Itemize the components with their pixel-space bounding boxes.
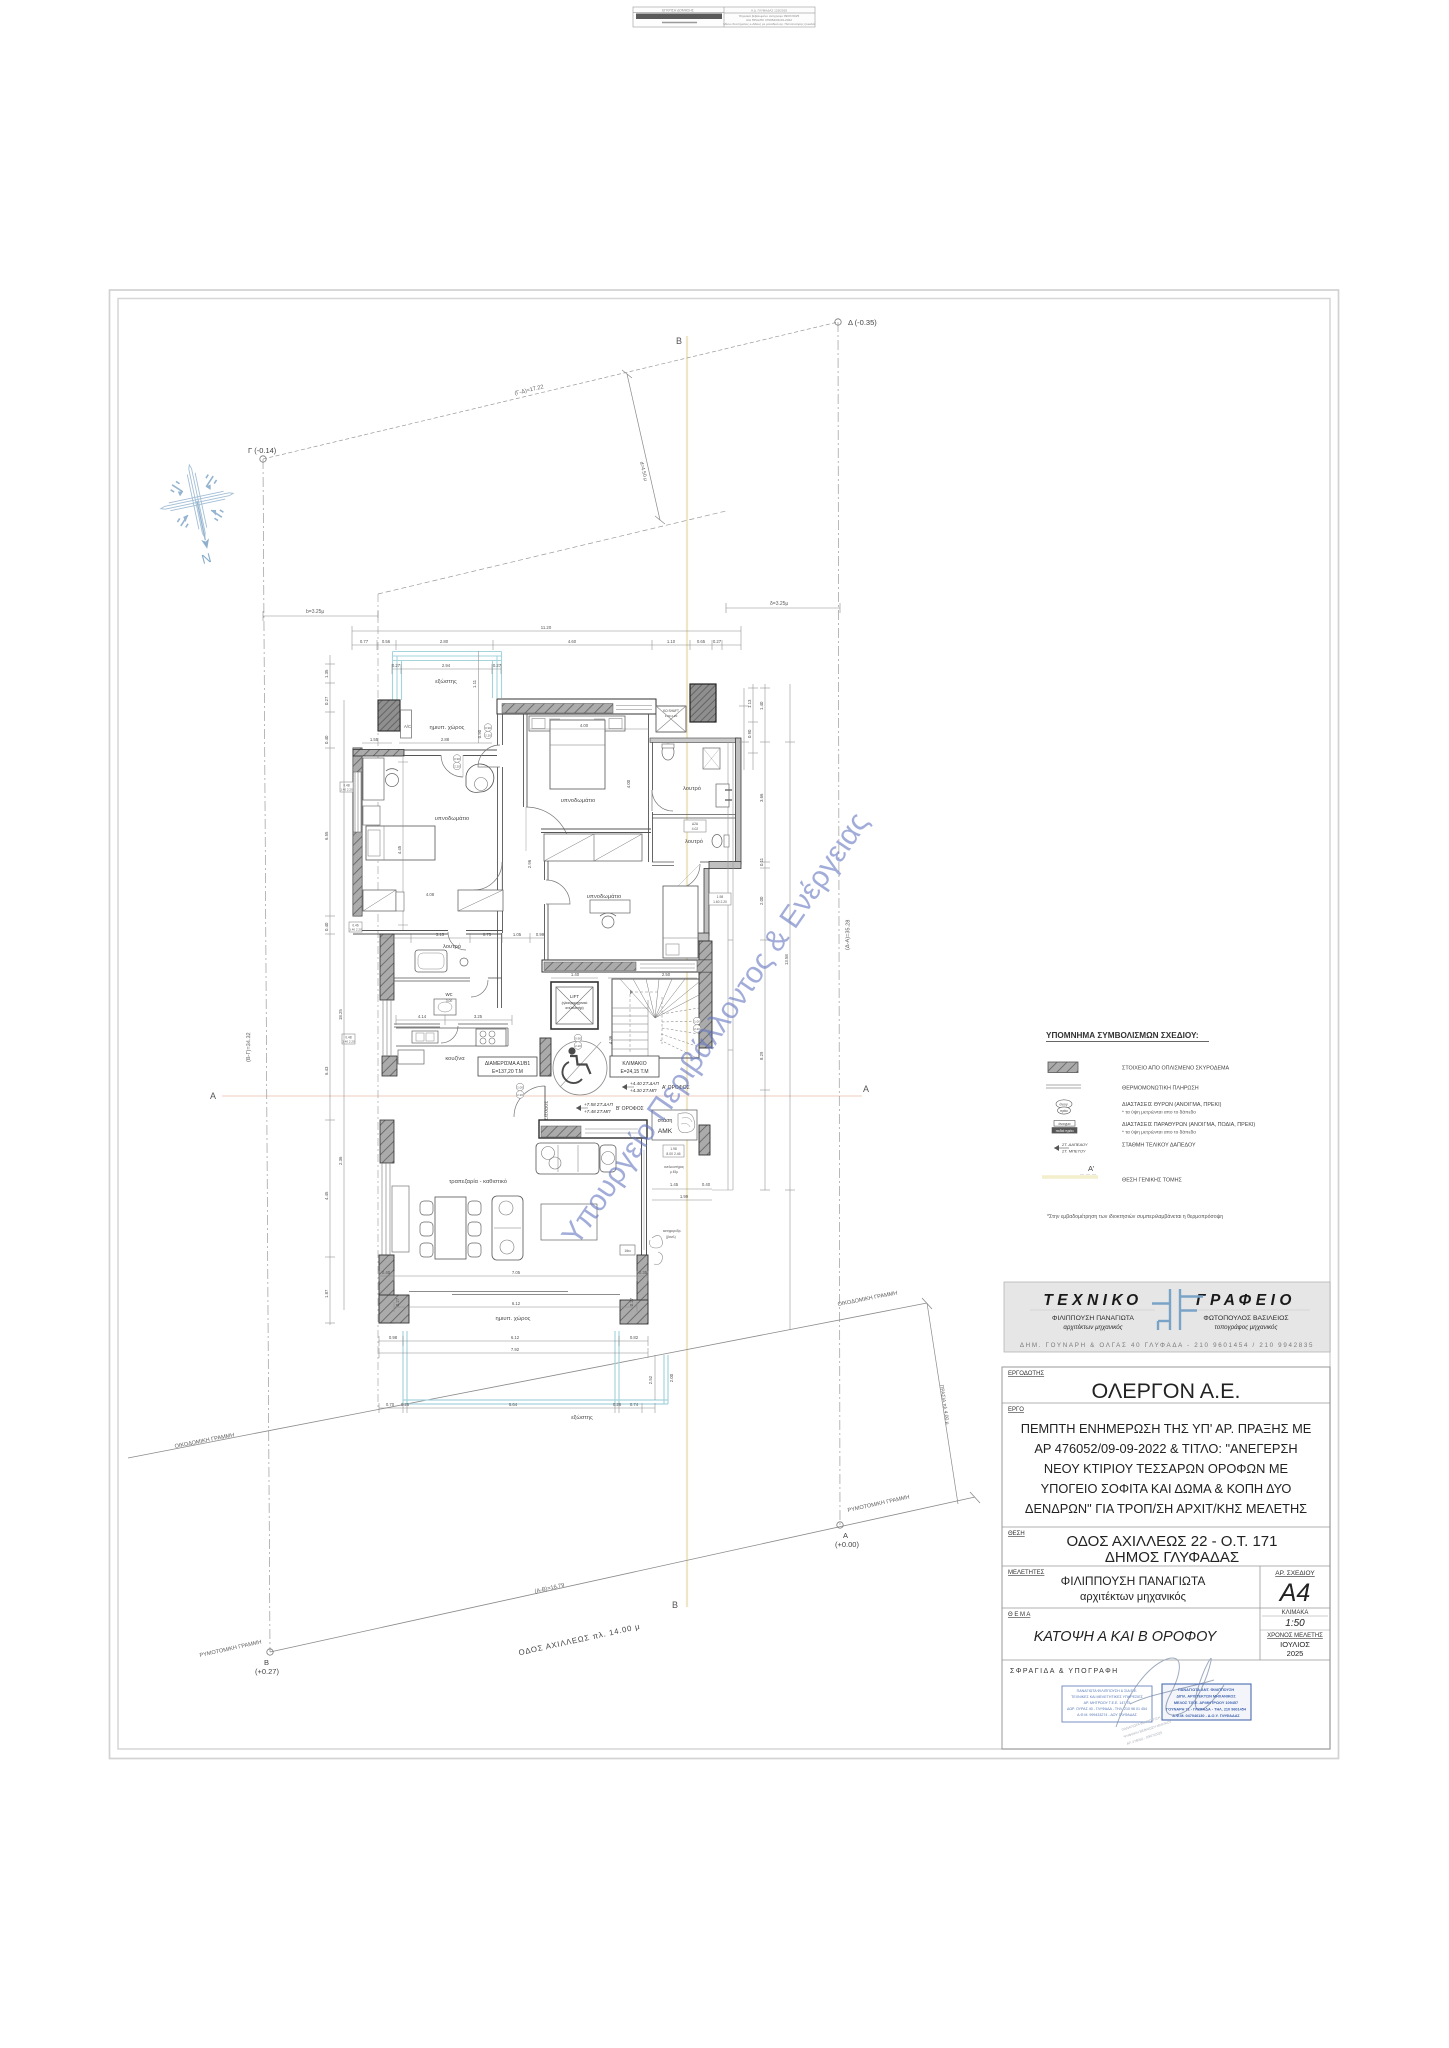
- svg-text:ΚΛΙΜΑΚΑ: ΚΛΙΜΑΚΑ: [1282, 1610, 1309, 1616]
- svg-text:0.27: 0.27: [629, 1297, 634, 1306]
- svg-text:ΣΤΟΙΧΕΙΟ ΑΠΟ ΟΠΛΙΣΜΕΝΟ ΣΚΥΡΟΔΕ: ΣΤΟΙΧΕΙΟ ΑΠΟ ΟΠΛΙΣΜΕΝΟ ΣΚΥΡΟΔΕΜΑ: [1122, 1066, 1230, 1072]
- svg-text:άνοιγ.: άνοιγ.: [1060, 1103, 1069, 1107]
- svg-text:LIFT: LIFT: [570, 994, 579, 999]
- svg-text:3.00: 3.00: [446, 999, 453, 1003]
- svg-text:2.36: 2.36: [338, 1156, 343, 1165]
- svg-text:11.20: 11.20: [541, 625, 552, 630]
- svg-text:2.20: 2.20: [575, 1044, 581, 1048]
- svg-text:0.98: 0.98: [389, 1335, 398, 1340]
- svg-text:ΔΙΑΣΤΑΣΕΙΣ ΘΥΡΩΝ (ΑΝΟΙΓΜΑ, ΠΡΕ: ΔΙΑΣΤΑΣΕΙΣ ΘΥΡΩΝ (ΑΝΟΙΓΜΑ, ΠΡΕΚΙ): [1122, 1102, 1222, 1108]
- svg-text:ΣΤ. ΔΑΠΕΔΟΥ: ΣΤ. ΔΑΠΕΔΟΥ: [1061, 1142, 1088, 1147]
- svg-text:κουζίνα: κουζίνα: [445, 1056, 465, 1062]
- svg-text:*Στην εμβαδομέτρηση των ιδιοκτ: *Στην εμβαδομέτρηση των ιδιοκτησιών συμπ…: [1047, 1213, 1223, 1220]
- svg-text:0.82: 0.82: [630, 1335, 639, 1340]
- svg-text:δ=3.25μ: δ=3.25μ: [770, 601, 788, 607]
- svg-text:ΔΙΑΜΕΡΙΣΜΑ Α1/Β1: ΔΙΑΜΕΡΙΣΜΑ Α1/Β1: [485, 1061, 531, 1067]
- svg-text:(Β-Γ)=34.32: (Β-Γ)=34.32: [246, 1032, 252, 1062]
- svg-text:ΜΕΛΟΣ Τ.Ε.Ε. ΑΡ.ΜΗΤΡΩΟΥ 109457: ΜΕΛΟΣ Τ.Ε.Ε. ΑΡ.ΜΗΤΡΩΟΥ 109457: [1174, 1701, 1238, 1705]
- svg-text:ΠΕΜΠΤΗ ΕΝΗΜΕΡΩΣΗ ΤΗΣ ΥΠ' ΑΡ. Π: ΠΕΜΠΤΗ ΕΝΗΜΕΡΩΣΗ ΤΗΣ ΥΠ' ΑΡ. ΠΡΑΞΗΣ ΜΕ: [1021, 1421, 1312, 1436]
- svg-text:0.90: 0.90: [575, 1037, 581, 1041]
- svg-text:υπνοδωμάτιο: υπνοδωμάτιο: [435, 815, 470, 822]
- svg-text:ΔΙΑΣΤΑΣΕΙΣ ΠΑΡΑΘΥΡΩΝ (ΑΝΟΙΓΜΑ,: ΔΙΑΣΤΑΣΕΙΣ ΠΑΡΑΘΥΡΩΝ (ΑΝΟΙΓΜΑ, ΠΟΔΙΑ, ΠΡ…: [1122, 1122, 1255, 1128]
- svg-text:0.27: 0.27: [395, 1297, 400, 1306]
- svg-text:2.52: 2.52: [648, 1375, 653, 1384]
- svg-text:2.94: 2.94: [442, 663, 451, 668]
- svg-text:4.60: 4.60: [568, 639, 577, 644]
- svg-text:0.40: 0.40: [324, 735, 329, 744]
- svg-text:μ 45μ: μ 45μ: [670, 1170, 678, 1174]
- svg-text:ημιυπ. χώρος: ημιυπ. χώρος: [430, 725, 465, 731]
- svg-text:1:50: 1:50: [1285, 1618, 1305, 1629]
- svg-text:+7.48 ΣΤ.ΜΠ: +7.48 ΣΤ.ΜΠ: [584, 1109, 611, 1114]
- svg-text:4.14: 4.14: [418, 1014, 427, 1019]
- svg-text:πρέκι: πρέκι: [1060, 1109, 1068, 1113]
- svg-text:ΤΕΧΝΙΚΕΣ ΚΑΙ ΜΕΛΕΤΗΤΙΚΕΣ ΥΠΗΡΕ: ΤΕΧΝΙΚΕΣ ΚΑΙ ΜΕΛΕΤΗΤΙΚΕΣ ΥΠΗΡΕΣΙΕΣ: [1071, 1695, 1144, 1699]
- svg-text:4.02: 4.02: [692, 827, 699, 831]
- svg-text:4.00: 4.00: [626, 779, 631, 788]
- svg-text:+4.40 ΣΤ.ΔΑΠ: +4.40 ΣΤ.ΔΑΠ: [630, 1081, 659, 1086]
- svg-text:ποδιά πρέκι: ποδιά πρέκι: [1056, 1129, 1074, 1133]
- svg-text:2.00: 2.00: [669, 1373, 674, 1382]
- svg-text:ανελκυστήρ): ανελκυστήρ): [565, 1006, 583, 1010]
- svg-text:ΕΡΓΟ: ΕΡΓΟ: [1008, 1407, 1024, 1413]
- svg-text:2.80: 2.80: [440, 639, 449, 644]
- svg-text:b=3.25μ: b=3.25μ: [306, 609, 324, 615]
- svg-text:υπνοδωμάτιο: υπνοδωμάτιο: [561, 797, 596, 804]
- svg-text:ΝΕΟΥ ΚΤΙΡΙΟΥ ΤΕΣΣΑΡΩΝ ΟΡΟΦΩΝ Μ: ΝΕΟΥ ΚΤΙΡΙΟΥ ΤΕΣΣΑΡΩΝ ΟΡΟΦΩΝ ΜΕ: [1044, 1461, 1288, 1476]
- svg-text:7.92: 7.92: [511, 1347, 520, 1352]
- svg-text:Α4: Α4: [1278, 1579, 1311, 1607]
- svg-text:3.25: 3.25: [474, 1014, 483, 1019]
- svg-text:0.40: 0.40: [324, 922, 329, 931]
- svg-text:1.40 2.20: 1.40 2.20: [349, 928, 362, 932]
- svg-text:1.55: 1.55: [370, 737, 379, 742]
- svg-text:ΘΕΣΗ: ΘΕΣΗ: [1008, 1531, 1025, 1537]
- svg-text:1.20 2.20: 1.20 2.20: [665, 714, 678, 718]
- svg-text:wc: wc: [444, 992, 452, 998]
- svg-text:ΙΟΥΛΙΟΣ: ΙΟΥΛΙΟΣ: [1280, 1640, 1310, 1649]
- svg-text:1.60 2.20: 1.60 2.20: [713, 900, 727, 904]
- svg-text:1.98: 1.98: [670, 1147, 677, 1151]
- svg-text:(ηλεκτρομηχανικό: (ηλεκτρομηχανικό: [562, 1001, 588, 1005]
- svg-text:0.70: 0.70: [386, 1402, 395, 1407]
- svg-text:(+0.00): (+0.00): [835, 1540, 859, 1549]
- svg-text:(Δ-Α)=35.28: (Δ-Α)=35.28: [845, 920, 852, 950]
- svg-text:ΧΡΟΝΟΣ ΜΕΛΕΤΗΣ: ΧΡΟΝΟΣ ΜΕΛΕΤΗΣ: [1267, 1633, 1323, 1639]
- svg-text:Θ Ε Μ Α: Θ Ε Μ Α: [1008, 1612, 1030, 1618]
- svg-text:αρχιτέκτων μηχανικός: αρχιτέκτων μηχανικός: [1080, 1591, 1186, 1603]
- svg-text:1.10: 1.10: [667, 639, 676, 644]
- svg-text:0.90: 0.90: [485, 726, 491, 730]
- svg-text:ΚΛΙΜΑΚΙΟ: ΚΛΙΜΑΚΙΟ: [622, 1061, 646, 1067]
- svg-text:4.00: 4.00: [580, 723, 589, 728]
- svg-text:A: A: [843, 1531, 848, 1540]
- svg-text:ΓΡΑΦΕΙΟ: ΓΡΑΦΕΙΟ: [1196, 1292, 1296, 1309]
- svg-text:6.43: 6.43: [324, 1066, 329, 1075]
- svg-text:τραπεζαρία - καθιστικό: τραπεζαρία - καθιστικό: [449, 1178, 507, 1185]
- svg-text:κατηφορόδρ.: κατηφορόδρ.: [663, 1229, 681, 1233]
- svg-text:Δ (-0.35): Δ (-0.35): [848, 318, 877, 327]
- svg-text:ΣΦΡΑΓΙΔΑ & ΥΠΟΓΡΑΦΗ: ΣΦΡΑΓΙΔΑ & ΥΠΟΓΡΑΦΗ: [1010, 1668, 1119, 1675]
- svg-text:0.27: 0.27: [324, 696, 329, 705]
- svg-text:1.98: 1.98: [717, 895, 724, 899]
- svg-text:3.66: 3.66: [759, 793, 764, 802]
- svg-text:Γ (-0.14): Γ (-0.14): [248, 446, 277, 455]
- svg-text:0.65: 0.65: [697, 639, 706, 644]
- svg-text:1.99: 1.99: [680, 1194, 689, 1199]
- svg-text:ΘΕΣΗ ΓΕΝΙΚΗΣ ΤΟΜΗΣ: ΘΕΣΗ ΓΕΝΙΚΗΣ ΤΟΜΗΣ: [1122, 1178, 1182, 1184]
- svg-text:4.45: 4.45: [324, 1191, 329, 1200]
- svg-text:τοπογράφος μηχανικός: τοπογράφος μηχανικός: [1215, 1324, 1278, 1331]
- svg-text:0.99: 0.99: [536, 932, 545, 937]
- svg-text:ΘΕΡΜΟΜΟΝΩΤΙΚΗ ΠΛΗΡΩΣΗ: ΘΕΡΜΟΜΟΝΩΤΙΚΗ ΠΛΗΡΩΣΗ: [1122, 1086, 1199, 1092]
- svg-text:ΕΓΚΡΙΣΗ ΔΟΜΗΣΗΣ: ΕΓΚΡΙΣΗ ΔΟΜΗΣΗΣ: [662, 9, 694, 13]
- svg-text:1.87: 1.87: [324, 1289, 329, 1298]
- svg-text:ΦΙΛΙΠΠΟΥΣΗ ΠΑΝΑΓΙΩΤΑ: ΦΙΛΙΠΠΟΥΣΗ ΠΑΝΑΓΙΩΤΑ: [1061, 1574, 1206, 1588]
- svg-text:5.64: 5.64: [509, 1402, 518, 1407]
- svg-text:ΔΩΡ. ΟΥΡΑΣ 40 - ΓΛΥΦΑΔΑ - ΤΗΛ.: ΔΩΡ. ΟΥΡΑΣ 40 - ΓΛΥΦΑΔΑ - ΤΗΛ. 210 96 01…: [1067, 1707, 1147, 1711]
- svg-text:2.88: 2.88: [441, 737, 450, 742]
- svg-text:0.27: 0.27: [713, 639, 722, 644]
- svg-text:1.13: 1.13: [747, 699, 752, 708]
- svg-text:ΑΡ. ΣΧΕΔΙΟΥ: ΑΡ. ΣΧΕΔΙΟΥ: [1275, 1570, 1315, 1577]
- svg-text:Ε=24,15 Τ.Μ: Ε=24,15 Τ.Μ: [620, 1069, 648, 1075]
- svg-text:ΕΡΓΟΔΟΤΗΣ: ΕΡΓΟΔΟΤΗΣ: [1008, 1371, 1044, 1377]
- svg-text:1.45: 1.45: [670, 1182, 679, 1187]
- svg-text:A: A: [863, 1084, 869, 1094]
- svg-text:4.08: 4.08: [426, 892, 435, 897]
- svg-text:ανελκυστήρας: ανελκυστήρας: [664, 1165, 684, 1169]
- svg-text:λουτρό: λουτρό: [683, 785, 701, 792]
- svg-text:αρχιτέκτων μηχανικός: αρχιτέκτων μηχανικός: [1063, 1324, 1122, 1331]
- svg-text:0.56: 0.56: [382, 639, 391, 644]
- svg-text:ημιυπ. χώρος: ημιυπ. χώρος: [496, 1316, 531, 1322]
- svg-text:ΠΑΝΑΓΙΩΤΑ ΦΙΛΙΠΠΟΥΣΗ & ΣΙΑ Ε.Ε: ΠΑΝΑΓΙΩΤΑ ΦΙΛΙΠΠΟΥΣΗ & ΣΙΑ Ε.Ε.: [1077, 1689, 1138, 1693]
- svg-text:ΔΙΠΛ. ΑΡΧΙΤΕΚΤΩΝ ΜΗΧΑΝΙΚΟΣ: ΔΙΠΛ. ΑΡΧΙΤΕΚΤΩΝ ΜΗΧΑΝΙΚΟΣ: [1176, 1695, 1236, 1699]
- svg-text:ΔΕΝΔΡΩΝ" ΓΙΑ ΤΡΟΠ/ΣΗ ΑΡΧΙΤ/ΚΗΣ: ΔΕΝΔΡΩΝ" ΓΙΑ ΤΡΟΠ/ΣΗ ΑΡΧΙΤ/ΚΗΣ ΜΕΛΕΤΗΣ: [1025, 1501, 1307, 1516]
- svg-text:Α.Φ.Μ. 047046130 - Δ.Ο.Υ. ΓΛΥΦ: Α.Φ.Μ. 047046130 - Δ.Ο.Υ. ΓΛΥΦΑΔΑΣ: [1172, 1714, 1240, 1718]
- svg-text:B: B: [676, 336, 682, 346]
- svg-text:0.75: 0.75: [483, 932, 492, 937]
- svg-text:ΦΩΤΟΠΟΥΛΟΣ ΒΑΣΙΛΕΙΟΣ: ΦΩΤΟΠΟΥΛΟΣ ΒΑΣΙΛΕΙΟΣ: [1203, 1315, 1288, 1322]
- svg-text:0.40: 0.40: [382, 1270, 391, 1275]
- svg-text:ΔΗΜΟΣ ΓΛΥΦΑΔΑΣ: ΔΗΜΟΣ ΓΛΥΦΑΔΑΣ: [1105, 1549, 1239, 1566]
- svg-text:B: B: [264, 1658, 269, 1667]
- svg-text:2025: 2025: [1287, 1649, 1304, 1658]
- svg-text:0.40: 0.40: [702, 1182, 711, 1187]
- svg-text:8.29: 8.29: [759, 1051, 764, 1060]
- svg-text:λουτρό: λουτρό: [685, 838, 703, 845]
- svg-text:ΜΕΛΕΤΗΤΕΣ: ΜΕΛΕΤΗΤΕΣ: [1008, 1570, 1045, 1576]
- svg-text:ΣΤ. ΜΠΕΤΟΥ: ΣΤ. ΜΠΕΤΟΥ: [1061, 1149, 1086, 1154]
- svg-text:0.27: 0.27: [493, 663, 502, 668]
- svg-text:0.11: 0.11: [759, 857, 764, 866]
- svg-text:ΟΛΕΡΓΟΝ Α.Ε.: ΟΛΕΡΓΟΝ Α.Ε.: [1092, 1379, 1241, 1403]
- svg-text:ΕΙΣΟΔΟΣ: ΕΙΣΟΔΟΣ: [544, 1101, 549, 1120]
- svg-text:7.05: 7.05: [512, 1270, 521, 1275]
- svg-text:(+0.27): (+0.27): [255, 1667, 279, 1676]
- svg-text:2.00: 2.00: [759, 896, 764, 905]
- svg-text:ΤΕΧΝΙΚΟ: ΤΕΧΝΙΚΟ: [1043, 1292, 1142, 1309]
- svg-text:λουτρό: λουτρό: [443, 943, 461, 950]
- svg-text:άνοιγμα: άνοιγμα: [1059, 1122, 1071, 1126]
- svg-text:2.20: 2.20: [454, 765, 460, 769]
- svg-text:Ε=137,20 Τ.Μ: Ε=137,20 Τ.Μ: [492, 1069, 523, 1075]
- svg-text:+7.58 ΣΤ.ΔΑΠ: +7.58 ΣΤ.ΔΑΠ: [584, 1102, 613, 1107]
- svg-text:Α.Φ.Μ. 999433274 - ΔΟΥ ΓΛΥΦΑΔΑ: Α.Φ.Μ. 999433274 - ΔΟΥ ΓΛΥΦΑΔΑΣ: [1077, 1713, 1138, 1717]
- svg-text:εξώστης: εξώστης: [435, 679, 457, 685]
- svg-text:* τα ύψη μετρώνται απο το δάπε: * τα ύψη μετρώνται απο το δάπεδο: [1122, 1129, 1196, 1136]
- svg-text:0.74: 0.74: [630, 1402, 639, 1407]
- svg-text:6.12: 6.12: [512, 1301, 521, 1306]
- svg-text:1.00: 1.00: [517, 1086, 523, 1090]
- svg-text:A: A: [210, 1091, 216, 1101]
- svg-text:ΚΑΤΟΨΗ Α ΚΑΙ Β ΟΡΟΦΟΥ: ΚΑΤΟΨΗ Α ΚΑΙ Β ΟΡΟΦΟΥ: [1034, 1629, 1218, 1645]
- svg-text:1.40: 1.40: [571, 972, 580, 977]
- svg-text:4.36: 4.36: [608, 1035, 613, 1044]
- svg-text:18.25: 18.25: [338, 1009, 343, 1020]
- svg-text:ΣΤΑΘΜΗ ΤΕΛΙΚΟΥ ΔΑΠΕΔΟΥ: ΣΤΑΘΜΗ ΤΕΛΙΚΟΥ ΔΑΠΕΔΟΥ: [1122, 1143, 1196, 1149]
- svg-text:Μέσω Συστήματος e-Αδειες με μο: Μέσω Συστήματος e-Αδειες με μοναδικό αρ.…: [723, 22, 815, 26]
- svg-text:Α': Α': [1088, 1164, 1095, 1173]
- svg-text:1.35: 1.35: [324, 669, 329, 678]
- svg-text:2.96: 2.96: [527, 859, 532, 868]
- svg-text:0.26: 0.26: [613, 1402, 622, 1407]
- svg-text:0.90: 0.90: [454, 757, 460, 761]
- svg-text:ΥΠΟΓΕΙΟ ΣΟΦΙΤΑ ΚΑΙ ΔΩΜΑ & ΚΟΠΗ: ΥΠΟΓΕΙΟ ΣΟΦΙΤΑ ΚΑΙ ΔΩΜΑ & ΚΟΠΗ ΔΥΟ: [1041, 1481, 1292, 1496]
- svg-text:A/C: A/C: [404, 724, 411, 729]
- svg-text:ΚΩ SHAFT: ΚΩ SHAFT: [663, 709, 679, 713]
- svg-text:B: B: [672, 1600, 678, 1610]
- svg-text:3.15: 3.15: [436, 932, 445, 937]
- svg-text:ΠΑΝΑΓΙΩΤΑ ΑΝΤ. ΦΙΛΙΠΠΟΥΣΗ: ΠΑΝΑΓΙΩΤΑ ΑΝΤ. ΦΙΛΙΠΠΟΥΣΗ: [1178, 1688, 1234, 1692]
- svg-text:Δ2Α: Δ2Α: [692, 822, 699, 826]
- svg-text:ΦΙΛΙΠΠΟΥΣΗ ΠΑΝΑΓΙΩΤΑ: ΦΙΛΙΠΠΟΥΣΗ ΠΑΝΑΓΙΩΤΑ: [1052, 1315, 1134, 1322]
- svg-text:ΥΠΟΜΝΗΜΑ ΣΥΜΒΟΛΙΣΜΩΝ ΣΧΕΔΙΟΥ:: ΥΠΟΜΝΗΜΑ ΣΥΜΒΟΛΙΣΜΩΝ ΣΧΕΔΙΟΥ:: [1046, 1031, 1199, 1040]
- svg-text:2.50: 2.50: [662, 972, 671, 977]
- svg-text:8.00 2.46: 8.00 2.46: [666, 1152, 680, 1156]
- svg-text:ΑΡ. ΜΗΤΡΩΟΥ Τ.Ε.Ε. 147 75: ΑΡ. ΜΗΤΡΩΟΥ Τ.Ε.Ε. 147 75: [1084, 1701, 1131, 1705]
- svg-text:2.20: 2.20: [485, 734, 491, 738]
- svg-text:(βανιλ): (βανιλ): [666, 1235, 676, 1239]
- svg-text:0.90: 0.90: [747, 729, 752, 738]
- svg-text:0.77: 0.77: [360, 639, 369, 644]
- svg-text:υπνοδωμάτιο: υπνοδωμάτιο: [587, 893, 622, 900]
- svg-text:εξώστης: εξώστης: [571, 1415, 593, 1421]
- svg-text:4.45: 4.45: [397, 845, 402, 854]
- svg-text:1.40 2.20: 1.40 2.20: [340, 788, 353, 792]
- svg-text:ΑΡ 476052/09-09-2022 & ΤΙΤΛΟ:: ΑΡ 476052/09-09-2022 & ΤΙΤΛΟ: "ΑΝΕΓΕΡΣΗ: [1034, 1441, 1297, 1456]
- svg-text:0.35: 0.35: [639, 1270, 648, 1275]
- svg-text:1θκι: 1θκι: [624, 1249, 630, 1253]
- svg-text:2.20: 2.20: [517, 1093, 523, 1097]
- svg-text:1.40: 1.40: [759, 701, 764, 710]
- svg-text:0.90: 0.90: [477, 729, 482, 738]
- svg-text:6.55: 6.55: [324, 831, 329, 840]
- svg-text:1.05: 1.05: [513, 932, 522, 937]
- svg-text:0.26: 0.26: [401, 1402, 410, 1407]
- svg-text:* τα ύψη μετρώνται απο το δάπε: * τα ύψη μετρώνται απο το δάπεδο: [1122, 1109, 1196, 1116]
- svg-text:Α.Δ. ΓΛΥΦΑΔΑΣ 123/2025: Α.Δ. ΓΛΥΦΑΔΑΣ 123/2025: [751, 8, 787, 12]
- svg-text:0.27: 0.27: [392, 663, 401, 668]
- svg-text:1.11: 1.11: [472, 679, 477, 688]
- svg-text:6.12: 6.12: [511, 1335, 520, 1340]
- svg-text:ΟΔΟΣ ΑΧΙΛΛΕΩΣ 22 - Ο.Τ. 171: ΟΔΟΣ ΑΧΙΛΛΕΩΣ 22 - Ο.Τ. 171: [1067, 1533, 1278, 1550]
- svg-text:ΔΗΜ. ΓΟΥΝΑΡΗ & ΟΛΓΑΣ 40 Γ: ΔΗΜ. ΓΟΥΝΑΡΗ & ΟΛΓΑΣ 40 ΓΛΥΦΑΔΑ - 210 96…: [1020, 1342, 1314, 1349]
- svg-text:ΓΟΥΝΑΡΗ 71 - ΓΛΥΦΑΔΑ - ΤΗΛ. 21: ΓΟΥΝΑΡΗ 71 - ΓΛΥΦΑΔΑ - ΤΗΛ. 210 9601454: [1166, 1708, 1247, 1712]
